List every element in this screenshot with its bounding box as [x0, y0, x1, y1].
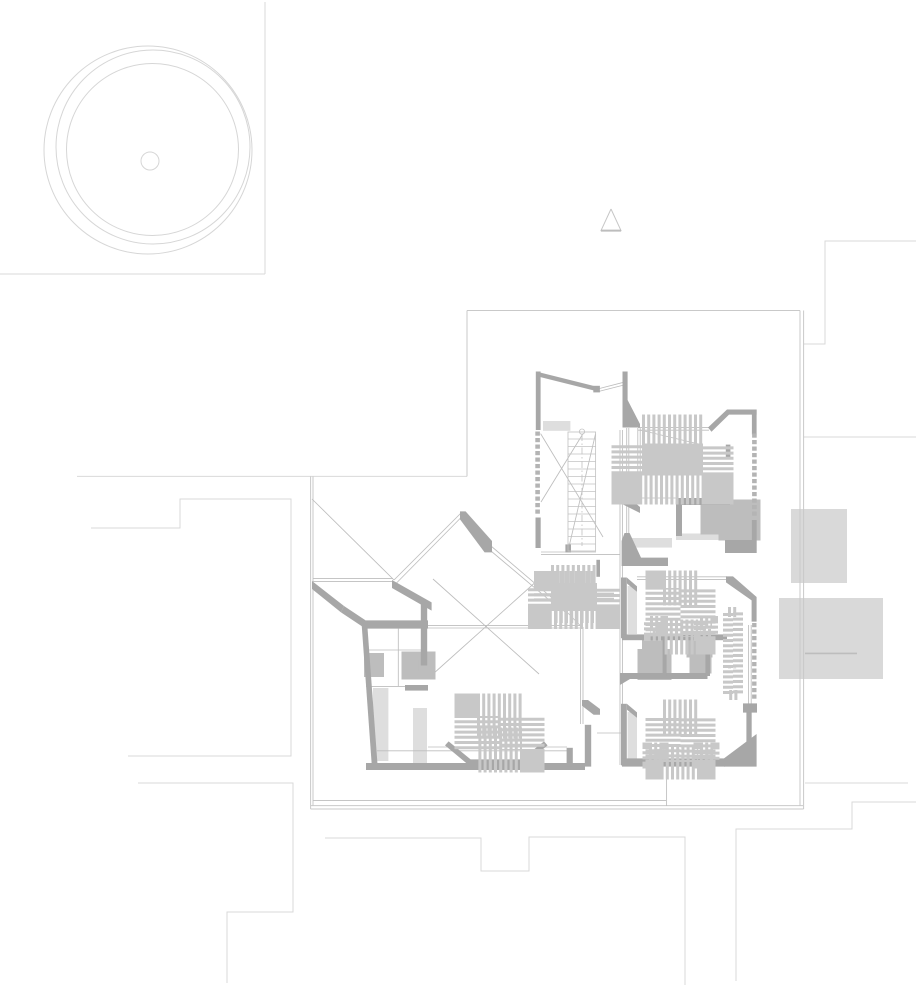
walls-shape — [536, 372, 541, 431]
walls-shape — [421, 601, 427, 666]
tree-symbol-shape — [67, 64, 239, 236]
site-boundaries-shape — [325, 837, 685, 985]
walls-shape — [392, 580, 432, 611]
furniture-dashed-shape — [728, 612, 738, 695]
walls-shape — [366, 620, 428, 628]
louver-hatch-shape — [752, 623, 756, 699]
site-boundaries-shape — [805, 624, 857, 653]
louver-hatch-shape — [535, 432, 540, 514]
light-fills-shape — [628, 712, 637, 760]
walls-shape — [743, 703, 757, 712]
walls-shape — [596, 560, 600, 577]
walls-shape — [752, 410, 757, 435]
site-boundaries-shape — [91, 499, 291, 756]
walls-shape — [536, 518, 541, 549]
site-boundaries-shape — [736, 802, 916, 981]
light-fills-shape — [543, 421, 570, 431]
walls-shape — [752, 520, 757, 553]
floor-plan-page — [0, 0, 916, 1000]
walls-shape — [708, 410, 757, 432]
north-marker-shape — [601, 209, 621, 231]
walls-shape — [620, 673, 630, 685]
light-fills-shape — [628, 586, 637, 634]
furniture-dashed-shape — [649, 749, 662, 762]
furniture-dashed-shape — [642, 445, 703, 474]
walls-shape — [536, 372, 596, 392]
light-fills-shape — [632, 538, 672, 548]
interior-thin-lines-shape — [394, 512, 462, 580]
walls-shape — [312, 581, 344, 612]
interior-thin-lines-shape — [698, 656, 705, 666]
floor-plan-drawing — [0, 0, 916, 1000]
site-boundaries-shape — [138, 783, 293, 983]
furniture-dashed-shape — [663, 588, 698, 637]
walls-shape — [725, 540, 752, 553]
walls-shape — [460, 511, 492, 552]
walls-shape — [623, 372, 641, 428]
walls-shape — [582, 700, 600, 715]
site-boundaries-shape — [804, 241, 916, 344]
walls-shape — [630, 673, 708, 679]
walls-shape — [621, 578, 627, 639]
walls-shape — [593, 386, 600, 393]
light-fills-shape — [413, 708, 427, 764]
walls-shape — [567, 748, 573, 767]
walls-shape — [405, 685, 428, 691]
tree-symbol-shape — [56, 50, 250, 244]
furniture-dashed-shape — [477, 716, 522, 750]
walls-shape — [585, 725, 591, 767]
furniture-dashed — [477, 445, 738, 762]
furniture-dashed-shape — [663, 717, 698, 762]
furniture-dashed-shape — [700, 622, 712, 635]
walls-shape — [622, 533, 668, 566]
interior-thin-lines-shape — [650, 661, 661, 669]
interior-thin-lines-shape — [599, 385, 624, 391]
interior-thin-lines-shape — [312, 499, 394, 580]
north-marker — [601, 209, 621, 231]
walls-shape — [676, 504, 682, 536]
site-boundaries — [0, 2, 916, 985]
tree-symbol — [44, 46, 252, 254]
interior-thin-lines-shape — [733, 513, 746, 526]
tree-symbol-shape — [141, 152, 159, 170]
walls-shape — [621, 704, 627, 766]
walls-shape — [724, 734, 757, 767]
furniture-dashed-shape — [551, 588, 597, 606]
interior-thin-lines-shape — [397, 515, 465, 584]
furniture-dashed-shape — [700, 749, 713, 762]
site-boundaries-shape — [805, 523, 833, 569]
interior-thin-lines-shape — [599, 382, 624, 388]
